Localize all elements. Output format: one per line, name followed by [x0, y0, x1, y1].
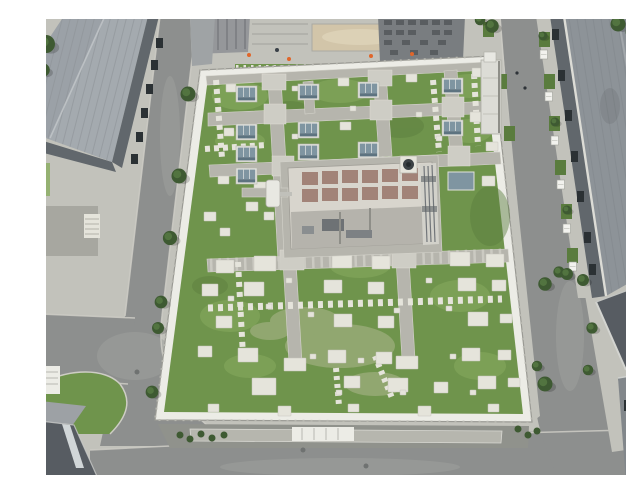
pad [264, 212, 274, 220]
pad [334, 314, 352, 327]
bush [187, 436, 194, 443]
pad [224, 128, 234, 136]
pad [450, 252, 470, 266]
pad [406, 74, 417, 82]
pad [376, 352, 392, 364]
manhole-cover [301, 448, 306, 453]
pad [278, 406, 291, 416]
pad [310, 354, 316, 359]
facade-window [552, 29, 559, 40]
skylight [298, 144, 319, 160]
facade-window [136, 132, 143, 142]
grass-cell [555, 160, 566, 175]
pad [462, 348, 480, 361]
facade-window [577, 191, 584, 202]
pad [500, 314, 512, 323]
grass-cell [504, 126, 515, 141]
pad [226, 84, 236, 92]
aerial-photo [40, 16, 626, 483]
skylight [358, 82, 379, 98]
bush [534, 428, 541, 435]
stair-landing [292, 427, 354, 441]
pad [218, 176, 229, 184]
pad [286, 278, 292, 283]
facade-window [131, 154, 138, 164]
pedestrian [523, 86, 526, 89]
skylight [236, 86, 257, 102]
pad [418, 406, 431, 416]
ac-unit [563, 224, 571, 233]
pad [400, 390, 406, 395]
bush [209, 435, 216, 442]
manhole-cover [135, 370, 140, 375]
pad [204, 212, 216, 221]
pad [350, 106, 356, 111]
pad [498, 350, 511, 360]
skylight [358, 142, 379, 158]
vent-canister [266, 180, 280, 207]
scene-canvas [40, 16, 626, 483]
pad [284, 358, 306, 371]
manhole-cover [364, 464, 369, 469]
pad [478, 376, 496, 389]
bush [177, 432, 184, 439]
facade-window [146, 84, 153, 94]
pad [426, 278, 432, 283]
pad [216, 316, 232, 328]
pad [368, 282, 384, 294]
pad [244, 282, 264, 296]
pad [340, 122, 351, 130]
traffic-cone [369, 54, 373, 58]
pad [344, 376, 360, 388]
pad [198, 346, 212, 357]
skylight [298, 122, 319, 138]
pad [396, 356, 418, 369]
pad [292, 134, 298, 139]
pad [450, 354, 456, 359]
pad [208, 404, 219, 412]
pad [292, 86, 298, 91]
skylight [236, 168, 257, 184]
pad [508, 378, 520, 387]
skylight [442, 78, 463, 94]
traffic-cone [410, 52, 414, 56]
pad [372, 256, 390, 269]
ac-unit [540, 50, 548, 59]
pad [338, 78, 349, 86]
facade-window [141, 108, 148, 118]
pad [468, 312, 488, 326]
pad [348, 404, 359, 412]
bush [198, 431, 205, 438]
pad [308, 312, 314, 317]
pad [446, 306, 452, 311]
facade-window [571, 151, 578, 162]
grass-cell [544, 74, 555, 89]
ac-unit [551, 136, 559, 145]
pedestrian [515, 71, 518, 74]
skylight [298, 84, 319, 100]
pad [324, 280, 342, 293]
traffic-cone [247, 53, 251, 57]
bush [515, 426, 522, 433]
pad [266, 304, 272, 309]
pad [246, 202, 258, 211]
pad [252, 378, 276, 395]
facade-window [589, 264, 596, 275]
pad [458, 278, 476, 291]
pad [436, 136, 442, 141]
pad [228, 296, 234, 301]
pad [238, 348, 258, 362]
pad [216, 260, 234, 273]
pad [336, 390, 342, 395]
pad [482, 176, 495, 186]
pad [492, 280, 506, 291]
pad [486, 142, 498, 151]
facade-window [156, 38, 163, 48]
pad [434, 382, 448, 393]
pad [358, 358, 364, 363]
pad [416, 112, 422, 117]
facade-window [151, 60, 158, 70]
pad [470, 390, 476, 395]
facade-window [565, 110, 572, 121]
pad [202, 284, 218, 296]
pad [220, 228, 230, 236]
facade-window [558, 70, 565, 81]
ac-unit [557, 180, 565, 189]
pad [378, 316, 394, 328]
ac-unit [545, 92, 553, 101]
skylight [236, 146, 257, 162]
pad [488, 404, 499, 412]
worker-figure [275, 48, 279, 52]
flat-skylight-panel [448, 172, 474, 190]
skylight [236, 124, 257, 140]
facade-window [584, 232, 591, 243]
grass-cell [567, 248, 578, 263]
pad [394, 308, 400, 313]
skylight [442, 120, 463, 136]
pad [486, 254, 504, 267]
stair-tower [481, 52, 501, 134]
pad [254, 256, 276, 271]
bush [221, 432, 228, 439]
traffic-cone [287, 57, 291, 61]
pad [328, 350, 346, 363]
bush [525, 432, 532, 439]
